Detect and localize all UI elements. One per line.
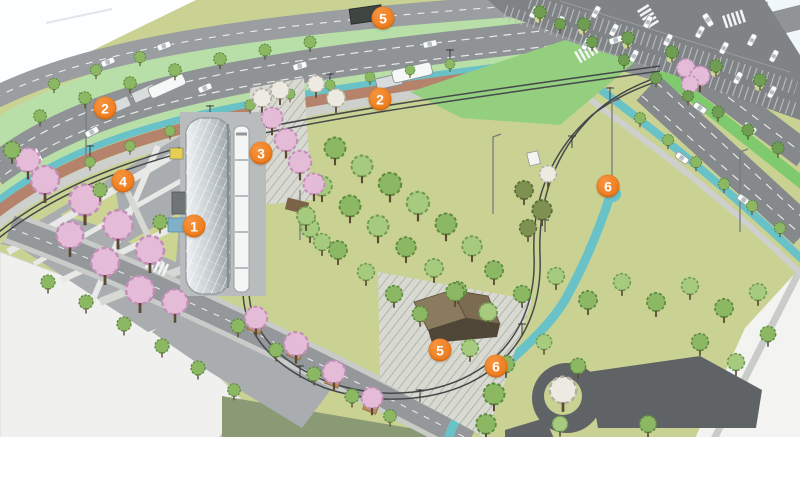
- tram-stop-canopy: [186, 118, 230, 294]
- map-marker-6-south: 6: [485, 355, 508, 378]
- map-marker-6-north: 6: [597, 175, 620, 198]
- map-marker-1: 1: [183, 215, 206, 238]
- map-marker-5-south: 5: [429, 339, 452, 362]
- legend: 1 ТРАМВАЙНАЯ ОСТАНОВКА 2 АВТОБУСНАЯ ОСТА…: [0, 437, 800, 490]
- map-marker-4: 4: [112, 170, 135, 193]
- map-marker-3: 3: [250, 142, 273, 165]
- site-plan-screenshot: 1 2 2 3 4 5 5 6 6 1 ТРАМВАЙНАЯ ОСТАНОВКА…: [0, 0, 800, 490]
- map-marker-2-east: 2: [369, 88, 392, 111]
- tram-vehicle: [234, 126, 249, 292]
- map-marker-2-west: 2: [94, 97, 117, 120]
- map-marker-5-north: 5: [372, 7, 395, 30]
- site-plan-rendering: [0, 0, 800, 443]
